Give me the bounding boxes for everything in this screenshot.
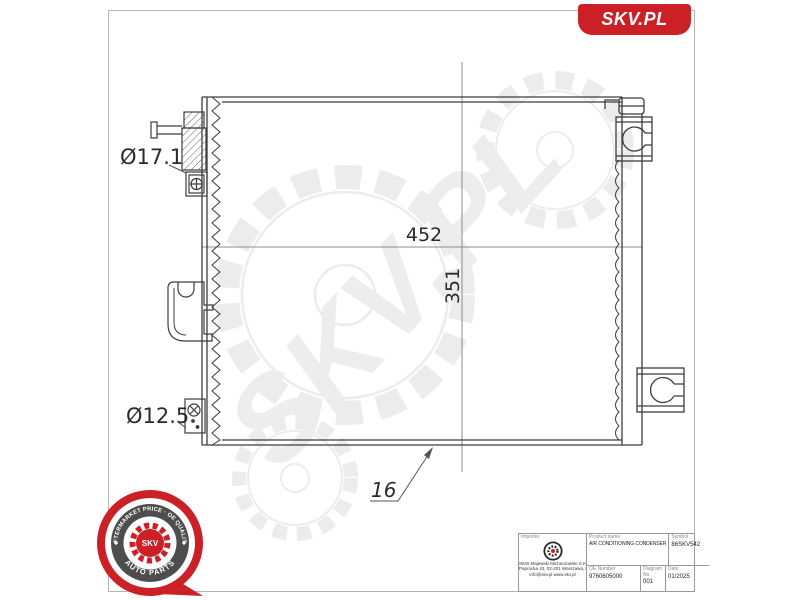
core-height-label: 351 xyxy=(442,268,464,304)
condenser-core xyxy=(202,97,642,445)
date-value: 01/2025 xyxy=(666,573,709,582)
symbol-value: 86SKV542 xyxy=(669,541,709,550)
badge-center-text: SKV xyxy=(142,539,159,548)
company-address: SKW Majewski Michnorowski S.K.A. Paprock… xyxy=(519,561,586,579)
brand-logo: SKV.PL xyxy=(578,4,691,35)
left-middle-bracket xyxy=(168,282,213,341)
oe-number-value: 9760605000 xyxy=(587,573,640,582)
oe-number-cell: OE Number 9760605000 xyxy=(587,566,641,591)
core-thickness-label: 16 xyxy=(371,478,396,502)
company-line-3: info@skv.pl www.skv.pl xyxy=(519,572,586,578)
core-width-label: 452 xyxy=(406,224,442,246)
diagram-no-label: Diagram No. xyxy=(641,566,665,578)
title-block-row-2: OE Number 9760605000 Diagram No. 001 Dat… xyxy=(587,565,709,591)
product-name-value: AIR CONDITIONING CONDENSER xyxy=(587,541,668,549)
page: SKV.PL xyxy=(0,0,800,600)
leader-lines xyxy=(169,165,433,501)
top-right-bracket xyxy=(605,98,652,161)
outlet-diameter-label: Ø12.5 xyxy=(126,404,189,428)
product-name-cell: Product name AIR CONDITIONING CONDENSER xyxy=(587,534,669,565)
company-logo-gear-icon xyxy=(543,541,563,561)
diagram-no-value: 001 xyxy=(641,578,665,587)
title-block-importer-cell: Importer SKW Majewski Michnorowski S.K.A… xyxy=(519,534,587,591)
dimension-labels: Ø17.1 Ø12.5 452 351 16 xyxy=(120,145,464,502)
diagram-no-cell: Diagram No. 001 xyxy=(641,566,666,591)
inlet-diameter-label: Ø17.1 xyxy=(120,145,183,169)
bottom-right-bracket xyxy=(637,368,684,412)
brand-logo-text: SKV.PL xyxy=(601,9,667,30)
dimension-lines xyxy=(202,62,642,472)
title-block-row-1: Product name AIR CONDITIONING CONDENSER … xyxy=(587,534,709,565)
symbol-cell: Symbol 86SKV542 xyxy=(669,534,709,565)
quality-badge: AFTERMARKET PRICE · OE QUALITY AUTO PART… xyxy=(90,486,214,600)
date-cell: Date 01/2025 xyxy=(666,566,709,591)
importer-label: Importer xyxy=(519,534,542,541)
title-block: Importer SKW Majewski Michnorowski S.K.A… xyxy=(518,533,695,592)
title-block-fields: Product name AIR CONDITIONING CONDENSER … xyxy=(587,534,709,591)
